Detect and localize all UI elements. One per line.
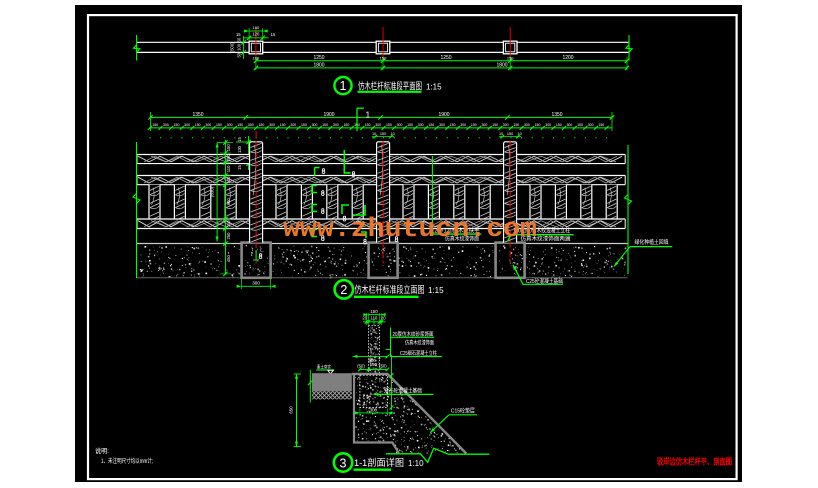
- svg-text:300: 300: [269, 123, 275, 127]
- svg-text:250: 250: [226, 232, 231, 240]
- svg-text:150: 150: [216, 123, 222, 127]
- svg-text:(630): (630): [210, 186, 215, 197]
- svg-text:300: 300: [312, 123, 318, 127]
- svg-text:1900: 1900: [438, 112, 449, 118]
- svg-text:C25砼混凝土基础: C25砼混凝土基础: [526, 277, 563, 285]
- svg-text:说明:: 说明:: [95, 446, 109, 455]
- svg-text:150: 150: [370, 362, 378, 367]
- svg-text:130: 130: [237, 145, 242, 153]
- svg-text:150: 150: [407, 123, 413, 127]
- svg-text:150: 150: [507, 56, 514, 61]
- svg-text:1: 1: [340, 79, 347, 93]
- svg-text:300: 300: [439, 123, 445, 127]
- svg-text:450: 450: [384, 386, 389, 394]
- svg-text:150: 150: [598, 123, 604, 127]
- svg-text:www.zhutucn.com: www.zhutucn.com: [283, 215, 537, 245]
- svg-text:100: 100: [237, 43, 242, 51]
- svg-text:300: 300: [375, 123, 381, 127]
- svg-text:150: 150: [370, 309, 378, 314]
- svg-text:150: 150: [386, 123, 392, 127]
- svg-text:20: 20: [362, 316, 367, 321]
- svg-text:C25砼混凝土基础: C25砼混凝土基础: [385, 387, 422, 395]
- svg-text:300: 300: [503, 123, 509, 127]
- svg-text:300: 300: [397, 123, 403, 127]
- svg-text:1:15: 1:15: [426, 82, 442, 91]
- svg-text:150: 150: [380, 56, 387, 61]
- svg-text:1350: 1350: [192, 112, 203, 118]
- svg-text:1250: 1250: [313, 55, 324, 61]
- svg-text:(500): (500): [229, 42, 234, 52]
- svg-text:100: 100: [253, 55, 260, 60]
- svg-text:300: 300: [333, 123, 339, 127]
- svg-text:300: 300: [227, 123, 233, 127]
- svg-text:仿木栏杆标准段立面图: 仿木栏杆标准段立面图: [355, 284, 425, 296]
- svg-text:1: 1: [366, 110, 371, 120]
- svg-text:400: 400: [226, 198, 231, 206]
- svg-text:2: 2: [340, 283, 347, 297]
- svg-text:150: 150: [226, 144, 231, 152]
- svg-text:150: 150: [174, 123, 180, 127]
- svg-text:C25细石混凝土立柱: C25细石混凝土立柱: [400, 349, 437, 357]
- svg-text:仿真木纹漆饰面: 仿真木纹漆饰面: [405, 338, 434, 346]
- svg-text:150: 150: [237, 123, 243, 127]
- svg-text:300: 300: [460, 123, 466, 127]
- svg-text:450: 450: [226, 255, 231, 263]
- svg-text:300: 300: [252, 280, 260, 285]
- svg-text:650: 650: [288, 406, 293, 414]
- svg-text:150: 150: [322, 123, 328, 127]
- svg-text:15: 15: [237, 137, 242, 142]
- svg-text:1-1剖面详图: 1-1剖面详图: [354, 457, 404, 469]
- svg-text:150: 150: [195, 123, 201, 127]
- svg-text:110: 110: [226, 165, 231, 172]
- svg-text:150: 150: [450, 123, 456, 127]
- svg-text:100: 100: [226, 154, 231, 162]
- svg-text:1、未注明尺寸均以mm计;: 1、未注明尺寸均以mm计;: [101, 457, 153, 465]
- svg-text:110: 110: [226, 220, 231, 227]
- svg-text:300: 300: [248, 123, 254, 127]
- svg-text:150: 150: [253, 25, 260, 30]
- svg-text:1350: 1350: [551, 112, 562, 118]
- svg-text:3: 3: [340, 456, 347, 470]
- svg-text:50: 50: [237, 37, 242, 42]
- svg-text:15: 15: [237, 165, 242, 170]
- svg-text:15: 15: [236, 32, 241, 37]
- svg-text:300: 300: [184, 123, 190, 127]
- svg-text:50: 50: [237, 52, 242, 57]
- svg-text:300: 300: [418, 123, 424, 127]
- svg-text:100: 100: [226, 176, 231, 184]
- svg-text:150: 150: [513, 123, 519, 127]
- svg-text:300: 300: [370, 408, 378, 413]
- svg-text:300: 300: [524, 123, 530, 127]
- svg-text:150: 150: [258, 123, 264, 127]
- svg-text:20厚仿木纹砂浆饰面: 20厚仿木纹砂浆饰面: [393, 330, 434, 338]
- svg-text:150: 150: [301, 123, 307, 127]
- svg-text:300: 300: [205, 123, 211, 127]
- svg-text:120: 120: [252, 32, 260, 37]
- svg-text:1:10: 1:10: [408, 459, 424, 468]
- svg-text:150: 150: [577, 123, 583, 127]
- svg-text:1200: 1200: [562, 55, 573, 61]
- svg-text:150: 150: [280, 123, 286, 127]
- svg-text:1250: 1250: [440, 55, 451, 61]
- svg-text:300: 300: [545, 123, 551, 127]
- svg-text:150: 150: [471, 123, 477, 127]
- svg-text:1800: 1800: [496, 62, 507, 68]
- svg-text:150: 150: [556, 123, 562, 127]
- svg-text:驳岸边仿木栏杆平、剖面图: 驳岸边仿木栏杆平、剖面图: [657, 456, 732, 466]
- svg-text:150: 150: [507, 132, 513, 136]
- svg-text:1:15: 1:15: [428, 286, 444, 295]
- svg-text:150: 150: [428, 123, 434, 127]
- svg-text:300: 300: [588, 123, 594, 127]
- svg-text:绿化种植土回填: 绿化种植土回填: [635, 238, 669, 246]
- svg-text:150: 150: [535, 123, 541, 127]
- svg-text:C15砼垫层: C15砼垫层: [451, 407, 475, 415]
- svg-text:1900: 1900: [323, 112, 334, 118]
- svg-text:300: 300: [163, 123, 169, 127]
- svg-text:150: 150: [365, 123, 371, 127]
- svg-text:150: 150: [380, 132, 386, 136]
- svg-text:150: 150: [492, 123, 498, 127]
- svg-text:300: 300: [290, 123, 296, 127]
- svg-text:仿木栏杆标准段平面图: 仿木栏杆标准段平面图: [358, 80, 422, 92]
- svg-text:15: 15: [271, 32, 276, 37]
- svg-text:300: 300: [481, 123, 487, 127]
- svg-text:150: 150: [343, 123, 349, 127]
- svg-text:150: 150: [152, 123, 158, 127]
- svg-text:1800: 1800: [313, 62, 324, 68]
- svg-text:300: 300: [566, 123, 572, 127]
